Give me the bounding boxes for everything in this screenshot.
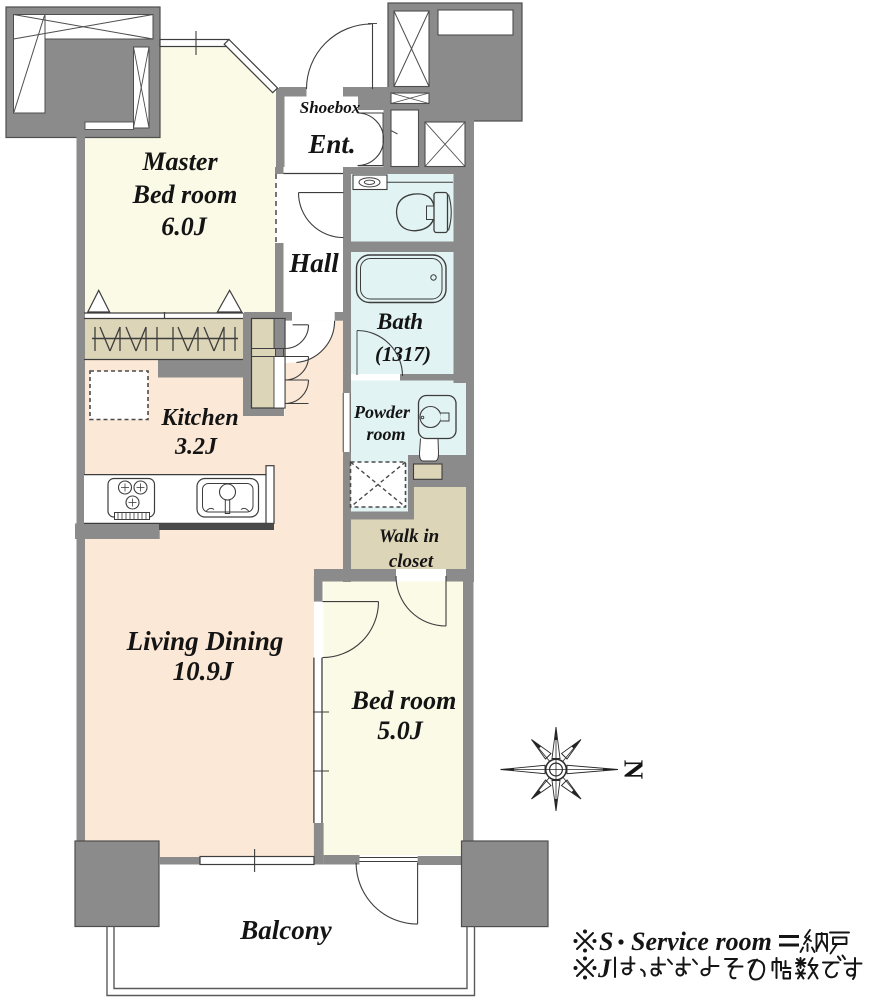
- svg-text:6.0J: 6.0J: [161, 212, 208, 241]
- svg-text:Bed room: Bed room: [132, 180, 238, 209]
- svg-text:Walk in: Walk in: [379, 526, 439, 547]
- svg-text:Shoebox: Shoebox: [300, 98, 361, 117]
- svg-text:10.9J: 10.9J: [173, 656, 235, 686]
- svg-text:Master: Master: [141, 147, 218, 176]
- svg-text:S: S: [599, 927, 613, 956]
- svg-text:N: N: [619, 760, 649, 780]
- svg-text:Bed room: Bed room: [351, 686, 457, 715]
- svg-text:J: J: [597, 954, 612, 983]
- svg-text:Living Dining: Living Dining: [126, 626, 284, 656]
- svg-text:Kitchen: Kitchen: [160, 405, 238, 431]
- svg-text:closet: closet: [389, 551, 434, 572]
- svg-text:Service room: Service room: [631, 927, 772, 956]
- svg-text:3.2J: 3.2J: [174, 434, 218, 460]
- svg-text:room: room: [366, 424, 405, 444]
- svg-text:(1317): (1317): [375, 342, 431, 366]
- svg-text:Bath: Bath: [376, 309, 423, 334]
- svg-text:Hall: Hall: [288, 248, 339, 278]
- svg-text:Powder: Powder: [353, 402, 411, 422]
- svg-text:5.0J: 5.0J: [377, 716, 424, 745]
- svg-text:Balcony: Balcony: [239, 915, 333, 945]
- svg-text:Ent.: Ent.: [307, 129, 355, 159]
